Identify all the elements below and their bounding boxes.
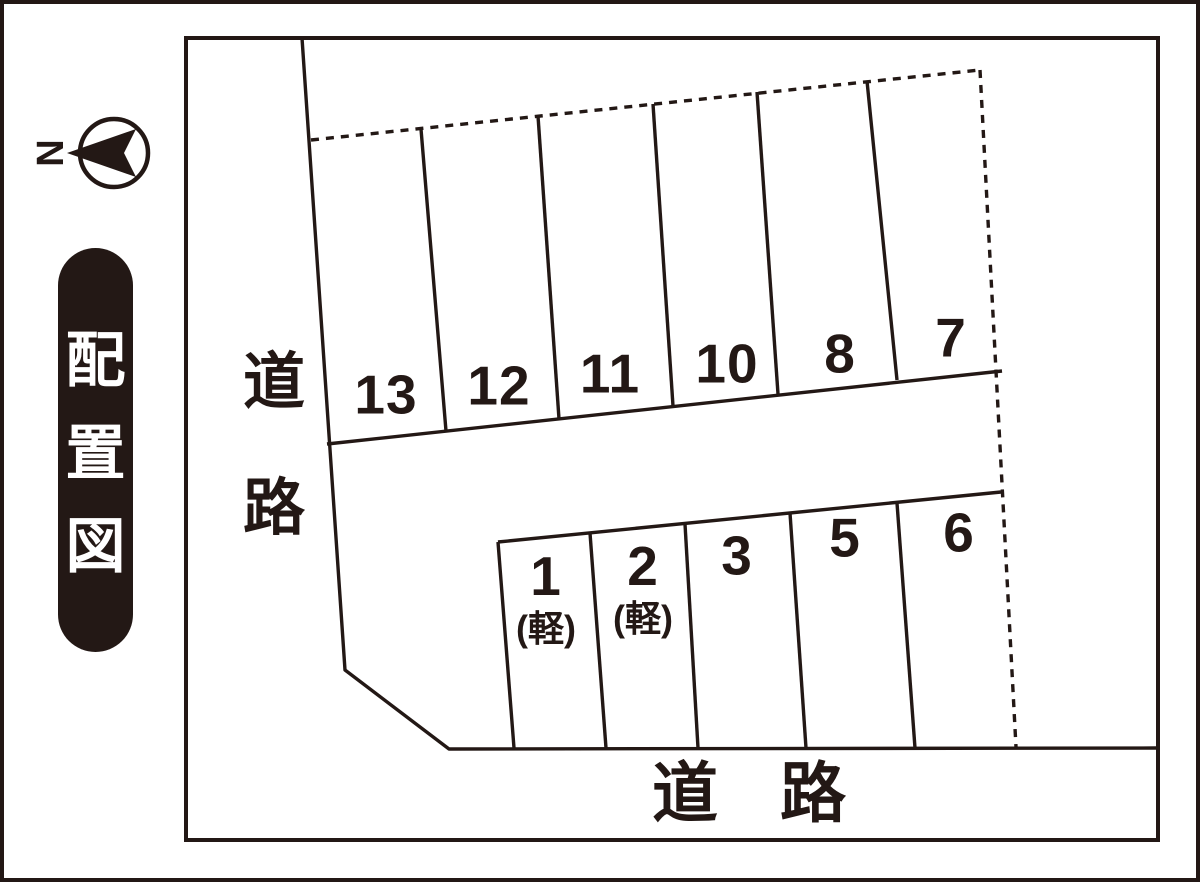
parking-slot-label-2: 2 (軽) [613, 539, 673, 637]
title-char: 置 [66, 424, 126, 484]
parking-slot-label-3: 3 [721, 529, 753, 584]
parking-slot-label-1: 1 (軽) [516, 549, 576, 647]
divider-slot-10-8 [757, 92, 778, 394]
divider-slot-5-6 [897, 503, 915, 748]
compass-north-label: N [29, 131, 73, 175]
parking-slot-label-6: 6 [943, 506, 975, 561]
divider-slot-13-12 [421, 129, 446, 431]
road-label-left: 道 路 [243, 352, 305, 540]
top-boundary-dotted-line [311, 70, 980, 140]
diagram-linework [0, 0, 1200, 882]
road-char: 道 [243, 352, 305, 414]
north-arrow-icon [67, 129, 136, 177]
road-char: 道 [652, 760, 718, 826]
divider-slot-12-11 [538, 116, 559, 419]
parking-slot-label-5: 5 [829, 511, 861, 566]
divider-slot-8-7 [867, 81, 897, 380]
parking-slot-label-12: 12 [467, 359, 530, 414]
slot-number: 2 [627, 539, 659, 594]
title-plate: 配 置 図 [58, 248, 133, 652]
diagram-box-border [186, 38, 1158, 840]
parking-slot-label-8: 8 [824, 327, 856, 382]
road-label-bottom: 道 路 [652, 760, 846, 826]
divider-slot-2-3 [685, 524, 698, 748]
divider-slot-3-5 [790, 513, 806, 748]
bottom-row-left-edge [498, 542, 514, 748]
slot-number: 1 [530, 549, 562, 604]
title-char: 図 [66, 517, 126, 577]
road-char: 路 [780, 760, 846, 826]
parking-slot-label-10: 10 [695, 337, 758, 392]
title-char: 配 [66, 331, 126, 391]
kei-car-note: (軽) [613, 601, 673, 637]
divider-slot-1-2 [590, 533, 606, 748]
parking-slot-label-11: 11 [580, 347, 640, 402]
right-boundary-dotted-line [980, 70, 1016, 747]
parking-slot-label-13: 13 [354, 368, 417, 423]
parking-layout-diagram: N 配 置 図 道 路 道 路 13 12 11 10 8 7 1 (軽) 2 … [0, 0, 1200, 882]
kei-car-note: (軽) [516, 611, 576, 647]
road-char: 路 [243, 478, 305, 540]
divider-slot-11-10 [653, 104, 673, 406]
parking-slot-label-7: 7 [935, 311, 967, 366]
top-row-bottom-line [327, 371, 1002, 444]
